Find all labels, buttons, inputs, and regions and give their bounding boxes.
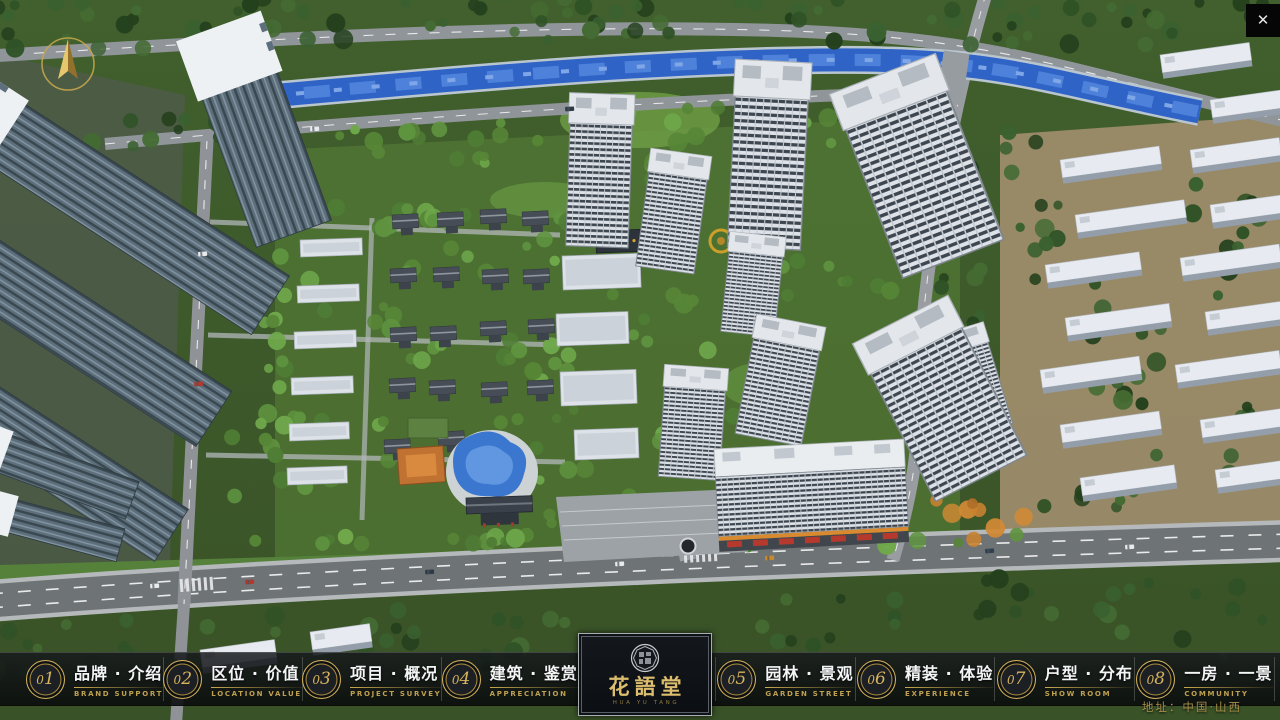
tree — [266, 315, 279, 328]
nav-item-number-badge: 02 — [163, 660, 202, 699]
map-shape — [194, 381, 203, 386]
map-shape — [442, 281, 454, 289]
tree — [492, 612, 506, 626]
tree — [162, 112, 177, 127]
map-shape — [767, 556, 769, 561]
tree — [259, 433, 272, 446]
tree — [569, 405, 579, 415]
tree — [562, 8, 573, 19]
nav-item-title-zh: 精装 · 体验 — [905, 660, 993, 684]
nav-item-number: 08 — [1147, 671, 1165, 688]
tree — [1006, 36, 1019, 49]
nav-item-07[interactable]: 07 户型 · 分布 SHOW ROOM — [997, 660, 1133, 699]
tree — [1028, 6, 1041, 19]
tree — [627, 23, 643, 39]
low-rise-building — [294, 330, 357, 349]
tree — [535, 15, 547, 27]
tree — [770, 633, 786, 649]
tree — [118, 641, 130, 653]
nav-item-labels: 建筑 · 鉴赏 APPRECIATION — [490, 660, 578, 698]
tree — [1023, 31, 1033, 41]
tree — [449, 151, 465, 167]
tree — [1189, 177, 1204, 192]
low-rise-building — [291, 376, 354, 395]
tree — [375, 219, 393, 237]
nav-item-labels: 精装 · 体验 EXPERIENCE — [905, 660, 993, 698]
nav-item-number-badge: 05 — [717, 660, 756, 699]
nav-item-04[interactable]: 04 建筑 · 鉴赏 APPRECIATION — [442, 660, 578, 699]
car — [150, 583, 159, 588]
tree — [909, 532, 926, 549]
tree — [1009, 605, 1022, 618]
tree — [317, 303, 332, 318]
car — [765, 555, 774, 560]
tree — [1236, 226, 1249, 239]
tree — [276, 355, 288, 367]
map-shape — [489, 223, 501, 231]
tree — [1053, 201, 1062, 210]
nav-item-labels: 一房 · 一景 COMMUNITY — [1184, 660, 1272, 698]
tree — [826, 32, 843, 49]
tree — [350, 125, 360, 135]
nav-item-subtitle-en: BRAND SUPPORT — [74, 690, 163, 698]
nav-item-subtitle-en: PROJECT SURVEY — [350, 690, 441, 698]
map-shape — [615, 561, 624, 566]
tree — [836, 594, 846, 604]
tree — [365, 132, 384, 151]
tree — [6, 39, 25, 58]
nav-item-gold-rule — [905, 687, 993, 688]
tree — [1, 27, 14, 40]
tree — [559, 617, 570, 628]
tree — [1035, 199, 1048, 212]
tree — [265, 606, 285, 626]
nav-item-gold-rule — [490, 687, 578, 688]
nav-item-number: 01 — [36, 671, 54, 688]
nav-divider — [1134, 657, 1135, 701]
tree — [270, 627, 281, 638]
tree — [1114, 625, 1129, 640]
tree — [1138, 37, 1154, 53]
tree — [407, 625, 421, 639]
map-shape — [563, 373, 634, 401]
tree — [711, 101, 725, 115]
tree — [819, 108, 838, 127]
tree — [1146, 10, 1165, 29]
map-shape — [200, 252, 202, 257]
tree — [402, 203, 414, 215]
tree — [494, 415, 508, 429]
nav-item-01[interactable]: 01 品牌 · 介绍 BRAND SUPPORT — [26, 660, 163, 699]
nav-item-number-badge: 08 — [1136, 660, 1175, 699]
nav-item-number-badge: 01 — [26, 660, 65, 699]
tree — [224, 429, 240, 445]
nav-divider — [715, 657, 716, 701]
tree — [1213, 290, 1223, 300]
tree — [1124, 4, 1137, 17]
nav-divider — [855, 657, 856, 701]
map-shape — [150, 583, 159, 588]
map-shape — [491, 283, 503, 291]
tree — [780, 593, 792, 605]
nav-item-number: 07 — [1007, 671, 1025, 688]
nav-item-title-zh: 区位 · 价值 — [211, 660, 302, 684]
tree — [268, 332, 286, 350]
map-shape — [532, 283, 544, 291]
map-shape — [290, 470, 344, 481]
tree — [785, 635, 797, 647]
tree — [367, 314, 383, 330]
nav-group-right: 05 园林 · 景观 GARDEN STREET 06 精装 · 体验 EXPE… — [714, 653, 1280, 705]
tree — [805, 638, 821, 654]
tree — [607, 289, 619, 301]
nav-item-labels: 户型 · 分布 SHOW ROOM — [1045, 660, 1133, 698]
tree — [131, 5, 141, 15]
tree — [267, 447, 283, 463]
tree — [431, 121, 447, 137]
nav-item-number: 04 — [452, 671, 470, 688]
map-shape — [152, 584, 154, 589]
tree — [465, 535, 482, 552]
tree — [966, 532, 981, 547]
nav-item-subtitle-en: GARDEN STREET — [765, 690, 853, 698]
tree — [119, 614, 133, 628]
nav-item-labels: 品牌 · 介绍 BRAND SUPPORT — [74, 660, 163, 698]
tree — [664, 113, 682, 131]
tree — [227, 489, 242, 504]
nav-item-08[interactable]: 08 一房 · 一景 COMMUNITY — [1136, 660, 1272, 699]
tree — [379, 302, 388, 311]
tree — [335, 131, 344, 140]
nav-item-number-badge: 04 — [442, 660, 481, 699]
tree — [10, 0, 20, 10]
map-shape — [399, 341, 411, 349]
map-shape — [198, 251, 207, 256]
tree — [178, 113, 191, 126]
nav-item-gold-rule — [350, 687, 441, 688]
tree — [887, 592, 904, 609]
tree — [512, 413, 524, 425]
map-shape — [292, 426, 346, 437]
tree — [0, 623, 17, 640]
map-shape — [247, 580, 249, 585]
tree — [973, 262, 987, 276]
tree — [443, 240, 459, 256]
map-shape — [310, 126, 319, 131]
tree — [142, 131, 159, 148]
low-rise-building — [287, 466, 348, 485]
tree — [953, 538, 963, 548]
map-shape — [1125, 544, 1134, 549]
tree — [333, 29, 353, 49]
nav-item-06[interactable]: 06 精装 · 体验 EXPERIENCE — [857, 660, 993, 699]
nav-item-title-zh: 项目 · 概况 — [350, 660, 441, 684]
tree — [1004, 165, 1020, 181]
map-shape — [1127, 545, 1129, 550]
tree — [1029, 273, 1041, 285]
site-map[interactable] — [0, 0, 1280, 720]
tree — [628, 329, 639, 340]
tree — [524, 362, 542, 380]
nav-item-gold-rule — [1184, 687, 1272, 688]
nav-item-number: 05 — [728, 671, 746, 688]
map-shape — [425, 569, 434, 574]
tree — [1060, 34, 1079, 53]
tree — [1107, 2, 1117, 12]
tree — [272, 248, 289, 265]
tree — [668, 133, 688, 153]
nav-item-02[interactable]: 02 区位 · 价值 LOCATION VALUE — [163, 660, 302, 699]
car — [615, 561, 624, 566]
tree — [23, 639, 34, 650]
tree — [981, 574, 993, 586]
tree — [1082, 12, 1097, 27]
nav-item-number: 03 — [312, 671, 330, 688]
tree — [486, 537, 497, 548]
tree — [1000, 142, 1013, 155]
tree — [532, 135, 543, 146]
map-shape — [489, 335, 501, 343]
tree — [790, 253, 806, 269]
tree — [315, 536, 330, 551]
address-text: 地址：中国·山西 — [1142, 699, 1242, 715]
tree — [506, 529, 525, 548]
tree — [1093, 601, 1110, 618]
nav-divider — [994, 657, 995, 701]
nav-item-subtitle-en: EXPERIENCE — [905, 690, 993, 698]
nav-item-gold-rule — [74, 687, 163, 688]
tree — [390, 602, 407, 619]
tree — [522, 242, 531, 251]
tree — [823, 261, 834, 272]
tree — [543, 35, 553, 45]
nav-item-gold-rule — [765, 687, 853, 688]
car — [565, 106, 574, 111]
nav-item-number-badge: 06 — [857, 660, 896, 699]
tree — [509, 27, 519, 37]
tree — [1228, 578, 1246, 596]
tree — [755, 620, 769, 634]
tree — [233, 6, 243, 16]
tree — [1063, 0, 1080, 16]
map-shape — [617, 562, 619, 567]
tree — [687, 295, 699, 307]
tree — [413, 351, 431, 369]
tree — [638, 313, 650, 325]
tree — [1225, 601, 1241, 617]
low-rise-building — [560, 369, 637, 406]
nav-item-title-zh: 户型 · 分布 — [1045, 660, 1133, 684]
car — [198, 251, 207, 256]
tree — [1190, 588, 1201, 599]
map-shape — [490, 396, 502, 404]
map-shape — [565, 106, 574, 111]
tree — [974, 609, 986, 621]
map-shape — [196, 382, 198, 387]
map-shape — [536, 394, 548, 402]
tree — [1027, 242, 1042, 257]
tree — [542, 611, 559, 628]
tree — [200, 619, 216, 635]
nav-group-left: 01 品牌 · 介绍 BRAND SUPPORT 02 区位 · 价值 LOCA… — [0, 653, 578, 705]
low-rise-building — [300, 238, 363, 257]
tree — [61, 619, 72, 630]
nav-item-number: 06 — [867, 671, 885, 688]
tree — [814, 6, 823, 15]
tree — [1016, 223, 1025, 232]
close-button[interactable]: ✕ — [1246, 4, 1280, 37]
nav-item-03[interactable]: 03 项目 · 概况 PROJECT SURVEY — [302, 660, 441, 699]
tree — [1002, 125, 1017, 140]
map-shape — [446, 226, 458, 234]
tree — [496, 118, 506, 128]
tree — [842, 276, 853, 287]
map-shape — [399, 282, 411, 290]
map-shape — [245, 579, 254, 584]
logo-subtitle: HUA YU TANG — [611, 700, 679, 706]
tree — [174, 125, 184, 135]
tree — [944, 2, 960, 18]
tree — [1010, 528, 1024, 542]
tree — [1028, 135, 1043, 150]
map-shape — [531, 225, 543, 233]
nav-item-subtitle-en: APPRECIATION — [490, 690, 578, 698]
map-shape — [401, 228, 413, 236]
tree — [1257, 615, 1267, 625]
tree — [536, 231, 552, 247]
car — [985, 548, 994, 553]
tree — [1242, 402, 1252, 412]
tree — [492, 127, 508, 143]
tree — [1147, 352, 1166, 371]
tree — [824, 632, 835, 643]
nav-divider — [1274, 657, 1275, 701]
nav-item-title-zh: 园林 · 景观 — [765, 660, 853, 684]
close-icon: ✕ — [1257, 12, 1270, 29]
tree — [354, 536, 370, 552]
tree — [934, 280, 949, 295]
tree — [963, 36, 979, 52]
tree — [576, 460, 594, 478]
map-shape — [565, 257, 638, 285]
low-rise-building — [574, 428, 639, 460]
map-shape — [312, 127, 314, 132]
tree — [294, 412, 306, 424]
map-shape — [438, 394, 450, 402]
tree — [1150, 449, 1163, 462]
map-shape — [765, 555, 774, 560]
map-shape — [439, 340, 451, 348]
tree — [391, 623, 402, 634]
tree — [123, 113, 138, 128]
tree — [1015, 508, 1033, 526]
nav-item-number-badge: 03 — [302, 660, 341, 699]
tree — [378, 416, 389, 427]
tree — [249, 535, 261, 547]
tree — [546, 518, 556, 528]
tree — [1113, 390, 1133, 410]
car — [310, 126, 319, 131]
nav-item-number: 02 — [174, 671, 192, 688]
compass-icon — [38, 34, 98, 94]
tree — [128, 141, 139, 152]
tree — [398, 124, 415, 141]
tree — [255, 418, 266, 429]
low-rise-building — [562, 253, 641, 290]
logo-emblem-icon — [630, 643, 660, 673]
tree — [665, 287, 681, 303]
tree — [986, 518, 1005, 537]
tree — [1011, 583, 1030, 602]
tree — [559, 461, 577, 479]
nav-item-labels: 区位 · 价值 LOCATION VALUE — [211, 660, 302, 698]
tree — [662, 27, 675, 40]
tree — [1136, 397, 1149, 410]
tree — [699, 341, 717, 359]
tree — [550, 256, 560, 266]
tree — [425, 20, 436, 31]
nav-item-title-zh: 建筑 · 鉴赏 — [490, 660, 578, 684]
nav-item-gold-rule — [211, 687, 302, 688]
tree — [967, 498, 978, 509]
tree — [461, 250, 473, 262]
nav-item-subtitle-en: SHOW ROOM — [1045, 690, 1133, 698]
tree — [467, 130, 484, 147]
tree — [135, 40, 151, 56]
tree — [682, 103, 693, 114]
tree — [379, 633, 394, 648]
low-rise-building — [556, 311, 629, 345]
tree — [582, 21, 600, 39]
nav-item-title-zh: 品牌 · 介绍 — [74, 660, 163, 684]
logo-panel[interactable]: 花語堂 HUA YU TANG — [578, 633, 712, 716]
tree — [1166, 27, 1177, 38]
tree — [296, 5, 310, 19]
nav-item-subtitle-en: COMMUNITY — [1184, 690, 1272, 698]
presentation-window: ✕ 01 品牌 · 介绍 BRAND SUPPORT 02 区位 · 价值 LO… — [0, 0, 1280, 720]
tree — [1121, 17, 1132, 28]
tree — [1224, 448, 1239, 463]
tree — [439, 18, 448, 27]
map-shape — [577, 432, 636, 456]
nav-item-title-zh: 一房 · 一景 — [1184, 660, 1272, 684]
tree — [510, 616, 524, 630]
tree — [890, 619, 901, 630]
tree — [561, 347, 577, 363]
tree — [1037, 499, 1051, 513]
tree — [338, 529, 354, 545]
tree — [631, 1, 642, 12]
map-shape — [537, 333, 549, 341]
nav-item-subtitle-en: LOCATION VALUE — [211, 690, 302, 698]
tree — [826, 138, 836, 148]
tree — [942, 504, 961, 523]
nav-item-number-badge: 07 — [997, 660, 1036, 699]
nav-item-gold-rule — [1045, 687, 1133, 688]
tree — [1174, 630, 1192, 648]
low-rise-building — [297, 284, 360, 303]
car — [194, 381, 203, 386]
map-shape — [567, 107, 569, 112]
tree — [992, 32, 1002, 42]
tree — [781, 289, 794, 302]
tree — [447, 533, 459, 545]
map-shape — [987, 549, 989, 554]
map-shape — [398, 392, 410, 400]
tree — [552, 414, 561, 423]
tree — [264, 364, 273, 373]
nav-item-05[interactable]: 05 园林 · 景观 GARDEN STREET — [717, 660, 853, 699]
